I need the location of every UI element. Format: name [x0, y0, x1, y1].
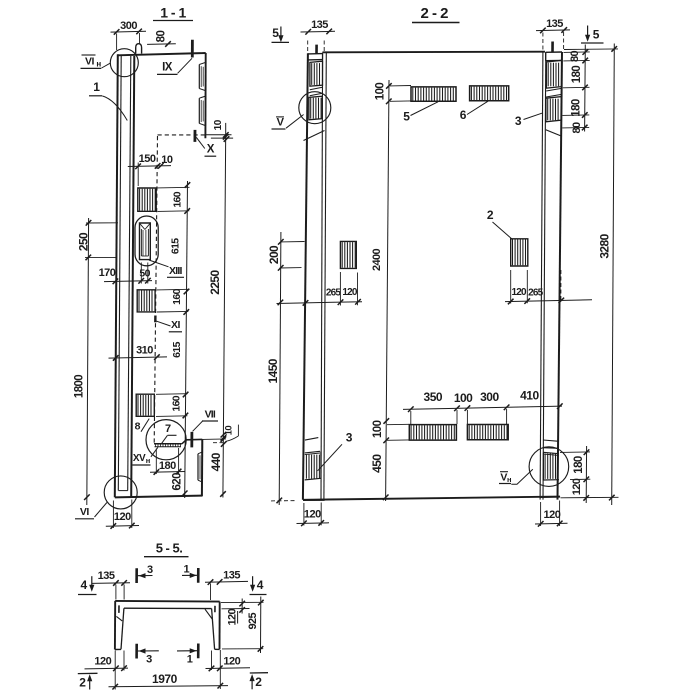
svg-text:250: 250 [77, 232, 91, 251]
svg-text:180: 180 [571, 66, 583, 84]
svg-text:10: 10 [213, 119, 224, 130]
svg-text:1: 1 [183, 563, 189, 575]
svg-text:2: 2 [487, 208, 494, 222]
svg-text:4: 4 [81, 578, 88, 592]
svg-text:180: 180 [159, 460, 176, 472]
svg-text:120: 120 [227, 608, 239, 625]
svg-text:120: 120 [94, 656, 111, 668]
svg-text:2: 2 [255, 675, 262, 689]
svg-text:3: 3 [147, 564, 153, 576]
svg-text:615: 615 [171, 341, 183, 357]
svg-text:н: н [507, 475, 511, 484]
svg-text:IX: IX [162, 61, 173, 73]
svg-text:135: 135 [223, 570, 240, 582]
svg-text:8: 8 [135, 421, 141, 433]
svg-text:80: 80 [569, 51, 581, 63]
svg-text:X: X [207, 143, 215, 155]
svg-text:2400: 2400 [371, 248, 383, 271]
svg-text:160: 160 [170, 395, 182, 411]
svg-text:310: 310 [136, 345, 153, 357]
svg-text:300: 300 [480, 390, 499, 404]
svg-text:925: 925 [247, 612, 259, 629]
svg-text:5: 5 [593, 28, 600, 42]
svg-text:100: 100 [454, 391, 473, 405]
svg-text:5: 5 [403, 110, 410, 124]
svg-text:170: 170 [99, 267, 116, 279]
svg-text:VI: VI [80, 506, 90, 518]
svg-text:3: 3 [346, 431, 353, 445]
svg-text:440: 440 [209, 452, 223, 471]
svg-text:1 - 1: 1 - 1 [160, 5, 186, 21]
svg-text:135: 135 [98, 570, 115, 582]
svg-text:135: 135 [546, 18, 563, 30]
svg-text:1: 1 [187, 654, 193, 666]
svg-text:180: 180 [571, 99, 583, 117]
svg-text:615: 615 [170, 238, 182, 254]
svg-text:XV: XV [133, 453, 146, 464]
svg-text:3: 3 [146, 653, 152, 665]
svg-text:120: 120 [304, 509, 321, 521]
svg-text:150: 150 [139, 153, 156, 165]
svg-text:5 - 5.: 5 - 5. [156, 541, 183, 556]
svg-text:160: 160 [171, 288, 183, 304]
svg-text:XI: XI [171, 319, 181, 331]
svg-text:350: 350 [424, 390, 443, 404]
svg-text:100: 100 [372, 420, 384, 438]
svg-text:620: 620 [171, 473, 183, 491]
svg-text:2250: 2250 [208, 270, 222, 295]
svg-text:3280: 3280 [597, 233, 611, 258]
svg-text:н: н [146, 456, 150, 465]
svg-text:120: 120 [223, 656, 240, 668]
svg-text:1450: 1450 [266, 358, 280, 383]
svg-text:2: 2 [79, 675, 86, 689]
svg-text:120: 120 [342, 287, 358, 298]
svg-text:450: 450 [370, 454, 384, 473]
svg-text:265: 265 [326, 287, 342, 298]
svg-text:180: 180 [573, 456, 585, 474]
svg-text:н: н [96, 60, 101, 69]
svg-text:120: 120 [511, 287, 527, 298]
svg-text:410: 410 [520, 388, 539, 402]
svg-text:200: 200 [267, 245, 281, 264]
svg-text:6: 6 [460, 108, 467, 122]
svg-text:300: 300 [120, 20, 137, 32]
svg-text:4: 4 [257, 578, 264, 592]
svg-text:265: 265 [528, 287, 544, 298]
svg-text:V: V [277, 117, 285, 129]
svg-text:120: 120 [543, 509, 560, 521]
svg-text:160: 160 [172, 191, 184, 207]
svg-text:3: 3 [515, 114, 522, 128]
svg-text:5: 5 [272, 26, 279, 40]
svg-text:XIII: XIII [169, 265, 182, 277]
svg-text:120: 120 [571, 478, 583, 495]
svg-text:1970: 1970 [152, 672, 178, 686]
svg-text:VI: VI [85, 56, 95, 68]
svg-text:120: 120 [114, 511, 131, 523]
svg-text:10: 10 [223, 426, 234, 436]
svg-text:80: 80 [571, 122, 583, 134]
svg-text:1800: 1800 [74, 375, 86, 398]
svg-text:VII: VII [205, 409, 216, 421]
svg-text:2 - 2: 2 - 2 [420, 5, 448, 22]
svg-text:80: 80 [155, 31, 167, 43]
svg-text:135: 135 [311, 19, 328, 31]
svg-text:100: 100 [375, 83, 387, 101]
svg-text:7: 7 [165, 423, 171, 435]
svg-text:1: 1 [93, 80, 100, 94]
